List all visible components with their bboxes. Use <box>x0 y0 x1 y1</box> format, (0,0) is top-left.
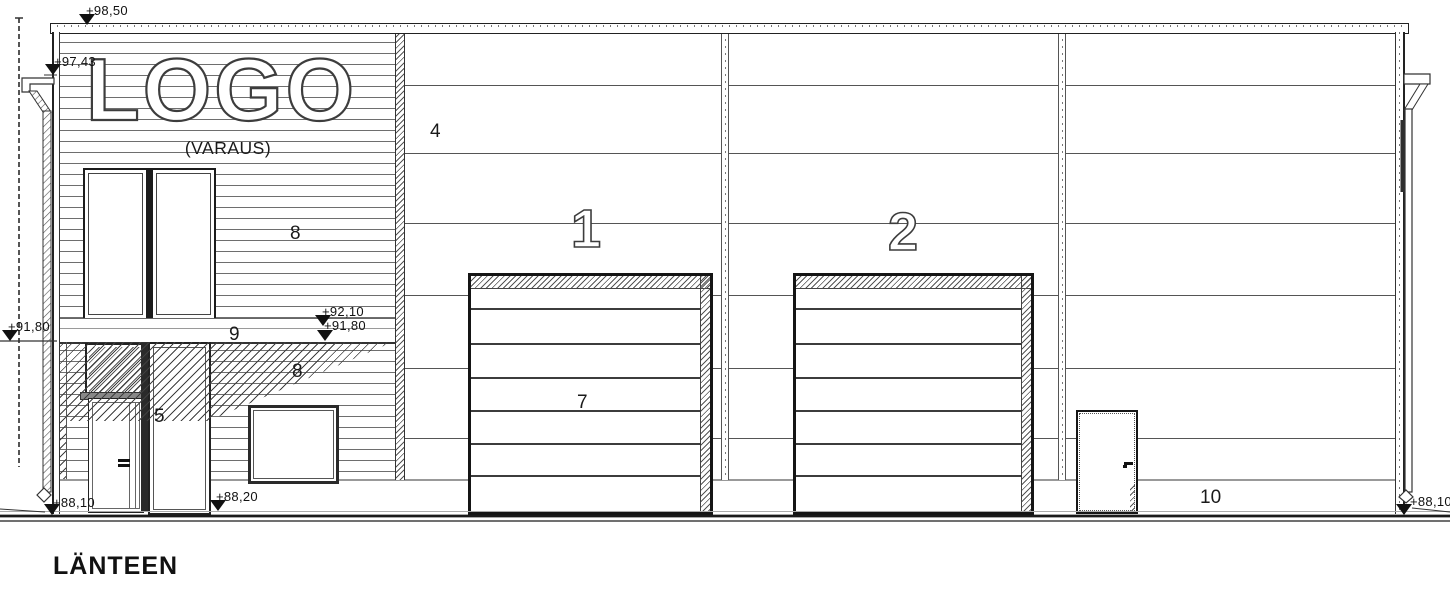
pipe-bracket <box>1401 120 1405 192</box>
keynote-door2-text: 2 <box>888 205 918 259</box>
elevation-mark-parapet-arrow <box>79 14 95 25</box>
elevation-mark-ground-right: +88,10 <box>1410 494 1450 509</box>
keynote-sectional-door: 7 <box>577 392 588 414</box>
keynote-door1: 1 <box>561 202 607 256</box>
keynote-siding-upper: 8 <box>290 223 301 245</box>
keynote-wall-panel: 4 <box>430 121 441 143</box>
keynote-door1-text: 1 <box>571 202 601 256</box>
keynote-plinth: 10 <box>1200 487 1221 509</box>
downpipe-left <box>29 91 51 502</box>
elevation-mark-canopy-bottom-arrow <box>317 330 333 341</box>
gutter-left <box>22 75 57 92</box>
elevation-mark-ground-right-arrow <box>1396 504 1412 515</box>
elevation-mark-eave-arrow <box>45 64 61 75</box>
keynote-door2: 2 <box>882 205 928 259</box>
keynote-canopy-band: 9 <box>229 324 240 346</box>
elevation-mark-canopy-left-arrow <box>2 330 18 341</box>
elevation-mark-ground-entrance-arrow <box>210 500 226 511</box>
drawing-title: LÄNTEEN <box>53 552 178 581</box>
keynote-panel-door: 5 <box>154 406 165 428</box>
west-elevation-drawing: LOGO (VARAUS) <box>0 0 1450 591</box>
elevation-mark-ground-left-arrow <box>44 504 60 515</box>
downpipe-right <box>1399 84 1428 503</box>
keynote-siding-lower: 8 <box>292 361 303 383</box>
gutter-right <box>1404 74 1430 84</box>
